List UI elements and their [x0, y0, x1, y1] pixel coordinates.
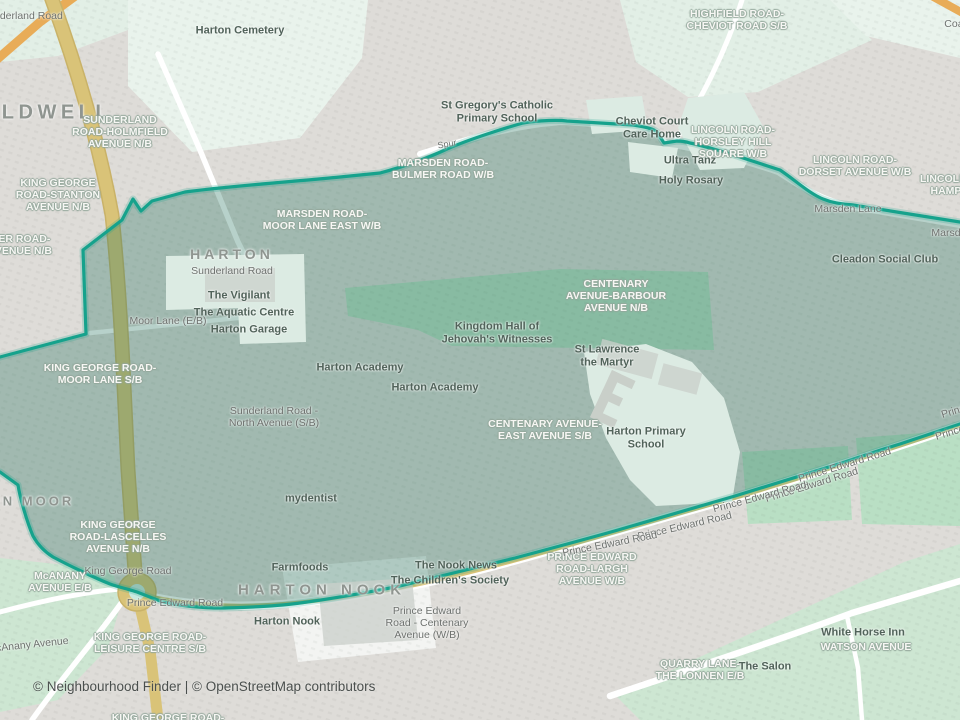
stop-marsden-bulmer-text: MARSDEN ROAD- [392, 158, 494, 170]
poi-the-nook-news-text: The Nook News [415, 560, 497, 573]
stop-sunderland-holmfield: SUNDERLANDROAD-HOLMFIELDAVENUE N/B [72, 115, 168, 151]
road-prince-edward-edge-1: Prince Edward Road [940, 382, 960, 422]
poi-ultra-tanz: Ultra Tanz [664, 155, 716, 168]
place-caldwell-text: CALDWELL [0, 102, 112, 125]
stop-marsden-moor-lane: MARSDEN ROAD-MOOR LANE EAST W/B [263, 209, 381, 233]
road-sunderland: Sunderland Road [191, 266, 273, 278]
poi-harton-academy-2-text: Harton Academy [391, 382, 478, 395]
poi-harton-nook: Harton Nook [254, 616, 320, 629]
stop-king-george-leisure-text: LEISURE CENTRE S/B [94, 644, 207, 656]
poi-st-lawrence-text: the Martyr [575, 356, 640, 369]
road-sunderland-top-text: Sunderland Road [0, 11, 63, 23]
road-spur: Spur [437, 137, 458, 150]
stop-quarry-lane-lonnen-text: QUARRY LANE- [656, 659, 745, 671]
poi-harton-academy-2: Harton Academy [391, 382, 478, 395]
road-prince-edward-west-text: Prince Edward Road [127, 598, 223, 610]
stop-king-george-moor-lane-text: MOOR LANE S/B [44, 375, 157, 387]
stop-king-george-lascelles-text: KING GEORGE [70, 520, 167, 532]
stop-sunderland-holmfield-text: SUNDERLAND [72, 115, 168, 127]
poi-the-nook-news: The Nook News [415, 560, 497, 573]
place-harton: HARTON [190, 247, 274, 263]
stop-mcanany-avenue-text: AVENUE E/B [28, 583, 91, 595]
place-harton-moor-text: HARTON MOOR [0, 495, 74, 510]
poi-harton-garage: Harton Garage [211, 324, 287, 337]
poi-mydentist: mydentist [285, 493, 337, 506]
poi-ultra-tanz-text: Ultra Tanz [664, 155, 716, 168]
road-prince-edward-edge-2: Prince Edward Road [934, 404, 960, 444]
road-sunderland-top: Sunderland Road [0, 11, 63, 23]
road-coast: Coast Road [944, 19, 960, 31]
poi-harton-academy-1-text: Harton Academy [316, 362, 403, 375]
stop-lincoln-hampshire-text: LINCOLN ROAD- [920, 174, 960, 186]
road-marsden-lane-edge-text: Marsden Lane [931, 228, 960, 240]
stop-centenary-east-text: CENTENARY AVENUE- [488, 419, 602, 431]
stop-king-george-lascelles-text: ROAD-LASCELLES [70, 532, 167, 544]
road-king-george: King George Road [85, 566, 172, 578]
stop-king-george-leisure-text: KING GEORGE ROAD- [94, 632, 207, 644]
stop-watson-avenue: WATSON AVENUE [821, 642, 912, 654]
stop-highfield-cheviot: HIGHFIELD ROAD-CHEVIOT ROAD S/B [687, 9, 788, 33]
poi-farmfoods: Farmfoods [272, 562, 329, 575]
poi-holy-rosary: Holy Rosary [659, 175, 723, 188]
stop-lincoln-horsley-hill-text: SQUARE W/B [691, 149, 775, 161]
stop-king-george-stanton-text: AVENUE N/B [16, 202, 100, 214]
poi-farmfoods-text: Farmfoods [272, 562, 329, 575]
poi-harton-primary: Harton PrimarySchool [606, 425, 685, 450]
road-prince-edward-2: Prince Edward Road [764, 466, 860, 506]
road-prince-edward-centenary-text: Prince Edward [386, 606, 469, 618]
road-sunderland-north-avenue-text: North Avenue (S/B) [229, 418, 319, 430]
poi-the-salon-text: The Salon [739, 661, 792, 674]
map-labels-layer: CALDWELLHARTONHARTON MOORHARTON NOOKHIGH… [0, 0, 960, 720]
stop-watson-avenue-text: WATSON AVENUE [821, 642, 912, 654]
stop-king-george-lascelles-text: AVENUE N/B [70, 544, 167, 556]
road-prince-edward-edge-2-text: Prince Edward Road [934, 404, 960, 444]
stop-prince-edward-largh-text: ROAD-LARGH [547, 564, 636, 576]
road-moor-lane-text: Moor Lane (E/B) [129, 316, 206, 328]
poi-kingdom-hall-text: Kingdom Hall of [442, 320, 553, 333]
place-harton-text: HARTON [190, 247, 274, 263]
road-prince-edward-edge-1-text: Prince Edward Road [940, 382, 960, 422]
poi-holy-rosary-text: Holy Rosary [659, 175, 723, 188]
road-marsden-lane: Marsden Lane [814, 204, 881, 216]
stop-quarry-lane-lonnen: QUARRY LANE-THE LONNEN E/B [656, 659, 745, 683]
poi-white-horse-inn: White Horse Inn [821, 627, 905, 640]
stop-king-george-lascelles: KING GEORGEROAD-LASCELLESAVENUE N/B [70, 520, 167, 556]
stop-marsden-bulmer: MARSDEN ROAD-BULMER ROAD W/B [392, 158, 494, 182]
poi-cleadon-social-club-text: Cleadon Social Club [832, 254, 938, 267]
stop-bulmer-road-text: AVENUE N/B [0, 246, 52, 258]
poi-st-gregorys-text: St Gregory's Catholic [441, 99, 553, 112]
poi-harton-cemetery-text: Harton Cemetery [196, 25, 285, 38]
road-prince-edward-3: Prince Edward Road [712, 480, 808, 516]
poi-mydentist-text: mydentist [285, 493, 337, 506]
stop-highfield-cheviot-text: HIGHFIELD ROAD- [687, 9, 788, 21]
poi-childrens-society-text: The Children's Society [391, 575, 509, 588]
poi-the-vigilant-text: The Vigilant [208, 290, 270, 303]
road-sunderland-north-avenue-text: Sunderland Road - [229, 406, 319, 418]
stop-lincoln-hampshire: LINCOLN ROAD-HAMPSHIRE [920, 174, 960, 198]
road-moor-lane: Moor Lane (E/B) [129, 316, 206, 328]
stop-marsden-bulmer-text: BULMER ROAD W/B [392, 170, 494, 182]
place-harton-moor: HARTON MOOR [0, 495, 74, 510]
place-harton-nook: HARTON NOOK [238, 581, 406, 598]
stop-bulmer-road-text: MER ROAD- [0, 234, 52, 246]
stop-bulmer-road: MER ROAD-AVENUE N/B [0, 234, 52, 258]
poi-childrens-society: The Children's Society [391, 575, 509, 588]
poi-cheviot-court-care-home: Cheviot CourtCare Home [616, 115, 689, 140]
stop-centenary-barbour-text: CENTENARY [566, 279, 666, 291]
poi-st-gregorys-text: Primary School [441, 112, 553, 125]
road-spur-text: Spur [437, 137, 458, 150]
stop-sunderland-holmfield-text: ROAD-HOLMFIELD [72, 127, 168, 139]
road-coast-text: Coast Road [944, 19, 960, 31]
poi-st-gregorys: St Gregory's CatholicPrimary School [441, 99, 553, 124]
stop-quarry-lane-lonnen-text: THE LONNEN E/B [656, 671, 745, 683]
poi-st-lawrence: St Lawrencethe Martyr [575, 343, 640, 368]
stop-lincoln-horsley-hill-text: LINCOLN ROAD- [691, 125, 775, 137]
road-prince-edward-3-text: Prince Edward Road [712, 480, 808, 516]
poi-harton-academy-1: Harton Academy [316, 362, 403, 375]
road-prince-edward-centenary-text: Road - Centenary [386, 618, 469, 630]
poi-white-horse-inn-text: White Horse Inn [821, 627, 905, 640]
stop-king-george-stanton-text: ROAD-STANTON [16, 190, 100, 202]
stop-centenary-barbour: CENTENARYAVENUE-BARBOURAVENUE N/B [566, 279, 666, 315]
road-marsden-lane-edge: Marsden Lane [931, 228, 960, 240]
stop-sunderland-holmfield-text: AVENUE N/B [72, 139, 168, 151]
road-prince-edward-2-text: Prince Edward Road [764, 466, 860, 506]
road-prince-edward-5: Prince Edward Road [562, 530, 659, 560]
road-sunderland-north-avenue: Sunderland Road -North Avenue (S/B) [229, 406, 319, 430]
stop-marsden-moor-lane-text: MARSDEN ROAD- [263, 209, 381, 221]
road-prince-edward-4-text: Prince Edward Road [637, 510, 734, 543]
road-marsden-lane-text: Marsden Lane [814, 204, 881, 216]
poi-st-lawrence-text: St Lawrence [575, 343, 640, 356]
stop-centenary-east: CENTENARY AVENUE-EAST AVENUE S/B [488, 419, 602, 443]
stop-king-george-bottom-text: KING GEORGE ROAD- [112, 713, 225, 720]
poi-cheviot-court-care-home-text: Cheviot Court [616, 115, 689, 128]
road-prince-edward-5-text: Prince Edward Road [562, 530, 659, 560]
poi-harton-primary-text: Harton Primary [606, 425, 685, 438]
stop-mcanany-avenue: McANANYAVENUE E/B [28, 571, 91, 595]
stop-centenary-barbour-text: AVENUE N/B [566, 303, 666, 315]
stop-king-george-leisure: KING GEORGE ROAD-LEISURE CENTRE S/B [94, 632, 207, 656]
stop-lincoln-hampshire-text: HAMPSHIRE [920, 186, 960, 198]
stop-highfield-cheviot-text: CHEVIOT ROAD S/B [687, 21, 788, 33]
poi-harton-cemetery: Harton Cemetery [196, 25, 285, 38]
stop-king-george-moor-lane-text: KING GEORGE ROAD- [44, 363, 157, 375]
attribution[interactable]: © Neighbourhood Finder | © OpenStreetMap… [33, 679, 375, 694]
poi-harton-nook-text: Harton Nook [254, 616, 320, 629]
stop-prince-edward-largh-text: PRINCE EDWARD [547, 552, 636, 564]
poi-kingdom-hall-text: Jehovah's Witnesses [442, 333, 553, 346]
stop-lincoln-dorset-text: LINCOLN ROAD- [799, 155, 912, 167]
poi-cheviot-court-care-home-text: Care Home [616, 128, 689, 141]
stop-lincoln-dorset-text: DORSET AVENUE W/B [799, 167, 912, 179]
poi-harton-primary-text: School [606, 438, 685, 451]
poi-the-salon: The Salon [739, 661, 792, 674]
stop-mcanany-avenue-text: McANANY [28, 571, 91, 583]
stop-king-george-bottom: KING GEORGE ROAD- [112, 713, 225, 720]
road-mcanany-avenue: McAnany Avenue [0, 636, 69, 656]
stop-prince-edward-largh-text: AVENUE W/B [547, 576, 636, 588]
stop-king-george-stanton: KING GEORGEROAD-STANTONAVENUE N/B [16, 178, 100, 214]
road-prince-edward-west: Prince Edward Road [127, 598, 223, 610]
stop-marsden-moor-lane-text: MOOR LANE EAST W/B [263, 221, 381, 233]
stop-king-george-moor-lane: KING GEORGE ROAD-MOOR LANE S/B [44, 363, 157, 387]
stop-prince-edward-largh: PRINCE EDWARDROAD-LARGHAVENUE W/B [547, 552, 636, 588]
poi-the-aquatic-centre: The Aquatic Centre [194, 307, 294, 320]
stop-centenary-barbour-text: AVENUE-BARBOUR [566, 291, 666, 303]
road-mcanany-avenue-text: McAnany Avenue [0, 636, 69, 656]
map-viewport[interactable]: CALDWELLHARTONHARTON MOORHARTON NOOKHIGH… [0, 0, 960, 720]
stop-king-george-stanton-text: KING GEORGE [16, 178, 100, 190]
place-caldwell: CALDWELL [0, 102, 112, 125]
stop-centenary-east-text: EAST AVENUE S/B [488, 431, 602, 443]
road-king-george-text: King George Road [85, 566, 172, 578]
poi-kingdom-hall: Kingdom Hall ofJehovah's Witnesses [442, 320, 553, 345]
road-prince-edward-1: Prince Edward Road [797, 446, 893, 486]
stop-lincoln-horsley-hill-text: HORSLEY HILL [691, 137, 775, 149]
road-prince-edward-4: Prince Edward Road [637, 510, 734, 543]
road-prince-edward-1-text: Prince Edward Road [797, 446, 893, 486]
poi-harton-garage-text: Harton Garage [211, 324, 287, 337]
poi-cleadon-social-club: Cleadon Social Club [832, 254, 938, 267]
road-prince-edward-centenary-text: Avenue (W/B) [386, 630, 469, 642]
road-prince-edward-centenary: Prince EdwardRoad - CentenaryAvenue (W/B… [386, 606, 469, 642]
place-harton-nook-text: HARTON NOOK [238, 581, 406, 598]
stop-lincoln-dorset: LINCOLN ROAD-DORSET AVENUE W/B [799, 155, 912, 179]
road-sunderland-text: Sunderland Road [191, 266, 273, 278]
poi-the-vigilant: The Vigilant [208, 290, 270, 303]
stop-lincoln-horsley-hill: LINCOLN ROAD-HORSLEY HILLSQUARE W/B [691, 125, 775, 161]
poi-the-aquatic-centre-text: The Aquatic Centre [194, 307, 294, 320]
